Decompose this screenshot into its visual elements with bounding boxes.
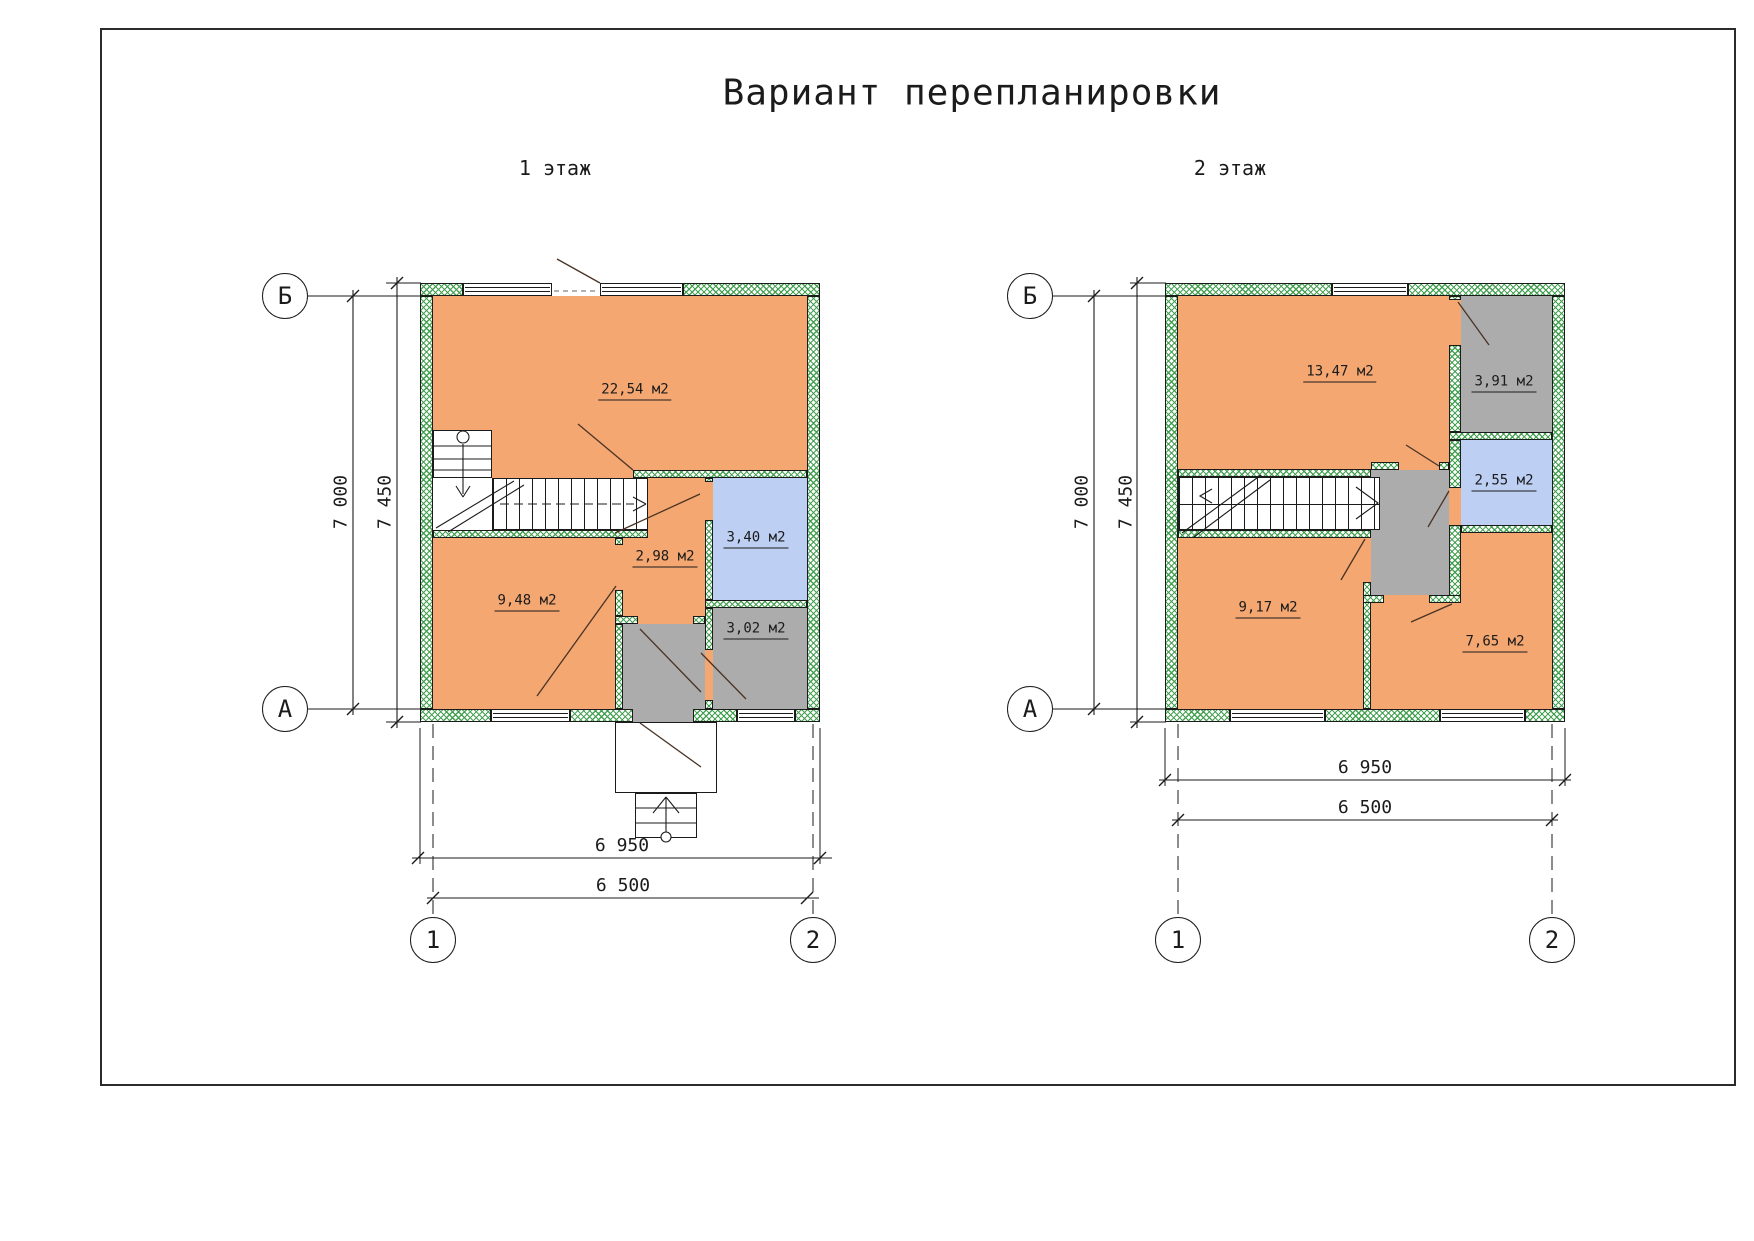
floor1-partition-lobby-b [693,616,705,624]
floor2-wall-right [1552,296,1565,709]
dim-label-height-axes-f2: 7 000 [1072,475,1093,529]
axis-bubble-row-bottom-f2: А [1007,686,1053,732]
floor1-title: 1 этаж [519,156,591,180]
drawing-sheet: Вариант перепланировки 1 этаж 2 этаж [0,0,1754,1241]
floor2-window-bottom-right [1440,709,1525,722]
floor1-wall-top-right [683,283,820,296]
floor2-partition-wardrobe-a [1449,296,1461,300]
axis-bubble-row-bottom-f1: А [262,686,308,732]
floor2-stair-run [1178,477,1380,530]
floor1-window-bottom-right [737,709,795,722]
axis-bubble-row-top-f2: Б [1007,273,1053,319]
floor2-wall-top-right [1408,283,1565,296]
floor1-partition-lobby-a [615,616,638,624]
dim-label-height-total-f1: 7 450 [375,475,396,529]
floor1-wall-top [420,283,463,296]
floor1-partition-hall-top [633,470,807,478]
floor1-partition-bath-bottom [705,600,807,608]
room-area-label: 3,40 м2 [723,530,788,549]
axis-bubble-col-left-f2: 1 [1155,917,1201,963]
floor2-wall-bottom-1 [1165,709,1230,722]
floor1-partition-bedroom-b [615,590,623,616]
drawing-title: Вариант перепланировки [723,73,1222,114]
room-area-label: 13,47 м2 [1303,364,1376,383]
floor1-stair-winder [433,430,492,478]
floor1-wall-left [420,296,433,709]
floor2-wall-bottom-2 [1325,709,1440,722]
floor1-wall-bottom-3 [693,709,737,722]
floor1-porch [615,722,717,793]
floor2-partition-stair-bottom [1178,530,1371,538]
room-area-label: 9,48 м2 [494,593,559,612]
room-area-label: 2,55 м2 [1471,473,1536,492]
floor1-partition-bedroom-a [615,538,623,545]
floor1-wall-bottom-2 [570,709,633,722]
dim-label-height-total-f2: 7 450 [1116,475,1137,529]
dim-label-width-total-f2: 6 950 [1338,757,1392,778]
floor2-room-fill-wardrobe [1461,296,1552,432]
floor2-wall-top-left [1165,283,1332,296]
floor1-wall-right [807,296,820,709]
floor2-partition-hall-top-a [1371,462,1399,470]
room-area-label: 3,91 м2 [1471,374,1536,393]
axis-bubble-col-left-f1: 1 [410,917,456,963]
axis-bubble-col-right-f1: 2 [790,917,836,963]
dim-label-width-total-f1: 6 950 [595,835,649,856]
floor1-entry-threshold [633,709,693,722]
floor2-window-top [1332,283,1408,296]
floor1-stair-landing [433,478,492,530]
dim-label-width-axes-f2: 6 500 [1338,797,1392,818]
floor2-hall-fill [1371,470,1449,595]
floor2-partition-stair-top [1178,469,1371,477]
floor2-partition-hall-bottom-a [1363,595,1384,603]
room-area-label: 7,65 м2 [1462,634,1527,653]
floor2-window-bottom-left [1230,709,1325,722]
floor1-wall-bottom-4 [795,709,820,722]
floor2-partition-wardrobe-bottom [1449,432,1552,440]
room-area-label: 3,02 м2 [723,621,788,640]
floor2-partition-bath-left-b [1449,525,1461,603]
floor1-wall-bottom-1 [420,709,491,722]
floor1-partition-understair [433,530,648,538]
floor1-partition-entry-left-a [705,608,713,650]
room-area-label: 2,98 м2 [632,549,697,568]
floor1-window-bottom-left [491,709,570,722]
floor2-partition-wardrobe-b [1449,345,1461,432]
floor2-partition-bath-bottom [1461,525,1552,533]
floor1-stair-run [492,478,648,530]
floor1-room-fill-entry-lobby [623,624,705,709]
floor2-partition-hall-bottom-b [1429,595,1461,603]
room-area-label: 9,17 м2 [1235,600,1300,619]
floor2-title: 2 этаж [1194,156,1266,180]
dim-label-height-axes-f1: 7 000 [331,475,352,529]
floor2-partition-hall-top-b [1439,462,1449,470]
floor1-partition-bath-left-a [705,478,713,482]
floor1-porch-steps [635,793,697,838]
floor1-partition-bedroom-c [615,624,623,709]
floor2-partition-bath-left-a [1449,440,1461,488]
floor1-partition-bath-left-b [705,520,713,600]
room-area-label: 22,54 м2 [598,382,671,401]
floor2-wall-bottom-3 [1525,709,1565,722]
floor2-wall-left [1165,296,1178,709]
floor1-window-top-left [463,283,552,296]
floor1-partition-entry-left-b [705,700,713,709]
axis-bubble-row-top-f1: Б [262,273,308,319]
axis-bubble-col-right-f2: 2 [1529,917,1575,963]
dim-label-width-axes-f1: 6 500 [596,875,650,896]
floor1-window-top-right [600,283,683,296]
